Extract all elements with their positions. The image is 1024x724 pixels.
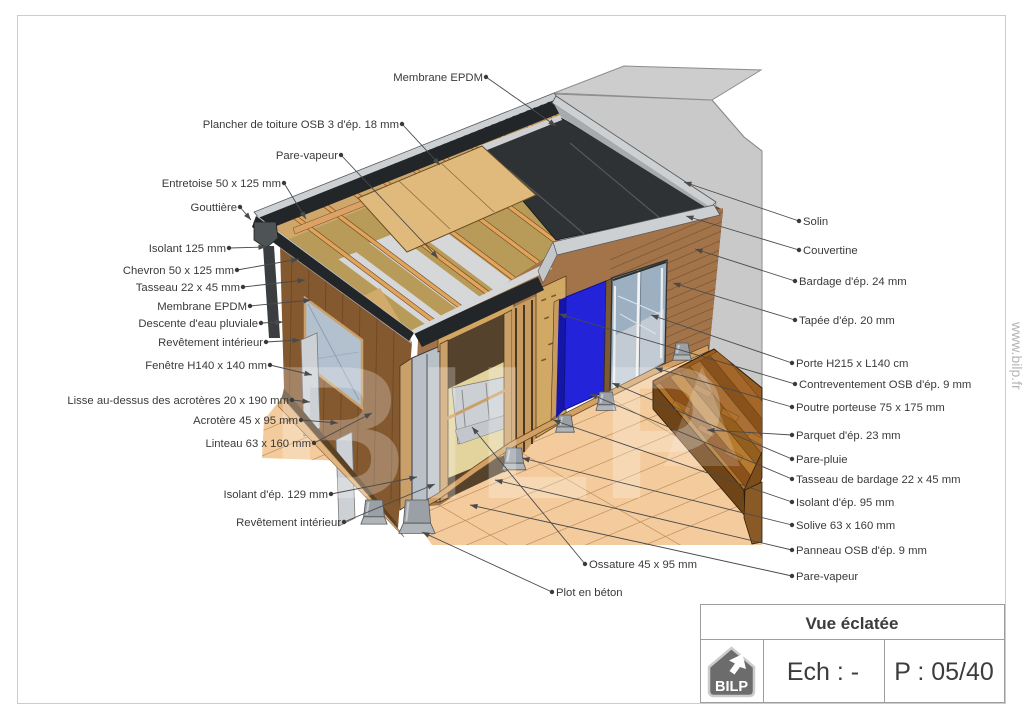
svg-text:Descente d'eau pluviale: Descente d'eau pluviale <box>138 318 258 330</box>
svg-text:Plot en béton: Plot en béton <box>556 587 623 599</box>
svg-text:BILP: BILP <box>270 327 735 539</box>
svg-text:Acrotère 45 x 95 mm: Acrotère 45 x 95 mm <box>193 415 298 427</box>
svg-text:BILP: BILP <box>715 679 748 695</box>
svg-text:Solive 63 x 160 mm: Solive 63 x 160 mm <box>796 520 895 532</box>
svg-text:Isolant d'ép. 129 mm: Isolant d'ép. 129 mm <box>223 489 328 501</box>
svg-text:Tapée d'ép. 20 mm: Tapée d'ép. 20 mm <box>799 315 895 327</box>
svg-text:Solin: Solin <box>803 216 828 228</box>
svg-text:Couvertine: Couvertine <box>803 245 858 257</box>
svg-text:Revêtement intérieur: Revêtement intérieur <box>158 337 263 349</box>
svg-text:Bardage d'ép. 24 mm: Bardage d'ép. 24 mm <box>799 276 907 288</box>
svg-text:Membrane EPDM: Membrane EPDM <box>393 72 483 84</box>
svg-text:Isolant d'ép. 95 mm: Isolant d'ép. 95 mm <box>796 497 894 509</box>
svg-text:Entretoise 50 x 125 mm: Entretoise 50 x 125 mm <box>162 178 281 190</box>
svg-text:Chevron 50 x 125 mm: Chevron 50 x 125 mm <box>123 265 234 277</box>
svg-text:Gouttière: Gouttière <box>191 202 237 214</box>
svg-text:Plancher de toiture OSB 3 d'ép: Plancher de toiture OSB 3 d'ép. 18 mm <box>203 119 399 131</box>
svg-text:Panneau OSB d'ép. 9 mm: Panneau OSB d'ép. 9 mm <box>796 545 927 557</box>
svg-text:Lisse au-dessus des acrotères: Lisse au-dessus des acrotères 20 x 190 m… <box>67 395 289 407</box>
svg-text:www.bilp.fr: www.bilp.fr <box>1009 321 1024 390</box>
svg-text:Fenêtre H140 x 140 mm: Fenêtre H140 x 140 mm <box>145 360 267 372</box>
svg-text:Contreventement OSB d'ép. 9 mm: Contreventement OSB d'ép. 9 mm <box>799 379 971 391</box>
svg-text:Pare-vapeur: Pare-vapeur <box>796 571 858 583</box>
svg-text:Linteau 63 x 160 mm: Linteau 63 x 160 mm <box>205 438 311 450</box>
svg-text:Ossature 45 x 95 mm: Ossature 45 x 95 mm <box>589 559 697 571</box>
svg-text:Revêtement intérieur: Revêtement intérieur <box>236 517 341 529</box>
svg-text:Tasseau 22 x 45 mm: Tasseau 22 x 45 mm <box>136 282 240 294</box>
svg-text:Parquet d'ép. 23 mm: Parquet d'ép. 23 mm <box>796 430 901 442</box>
svg-text:Vue éclatée: Vue éclatée <box>806 614 899 633</box>
svg-text:Poutre porteuse 75 x 175 mm: Poutre porteuse 75 x 175 mm <box>796 402 945 414</box>
svg-text:Ech : -: Ech : - <box>787 658 859 686</box>
svg-text:Pare-pluie: Pare-pluie <box>796 454 848 466</box>
svg-text:Pare-vapeur: Pare-vapeur <box>276 150 338 162</box>
svg-text:Porte H215 x L140 cm: Porte H215 x L140 cm <box>796 358 908 370</box>
svg-text:Isolant 125 mm: Isolant 125 mm <box>149 243 226 255</box>
svg-text:Tasseau de bardage 22 x 45 mm: Tasseau de bardage 22 x 45 mm <box>796 474 961 486</box>
svg-text:P : 05/40: P : 05/40 <box>894 658 994 686</box>
svg-text:Membrane EPDM: Membrane EPDM <box>157 301 247 313</box>
